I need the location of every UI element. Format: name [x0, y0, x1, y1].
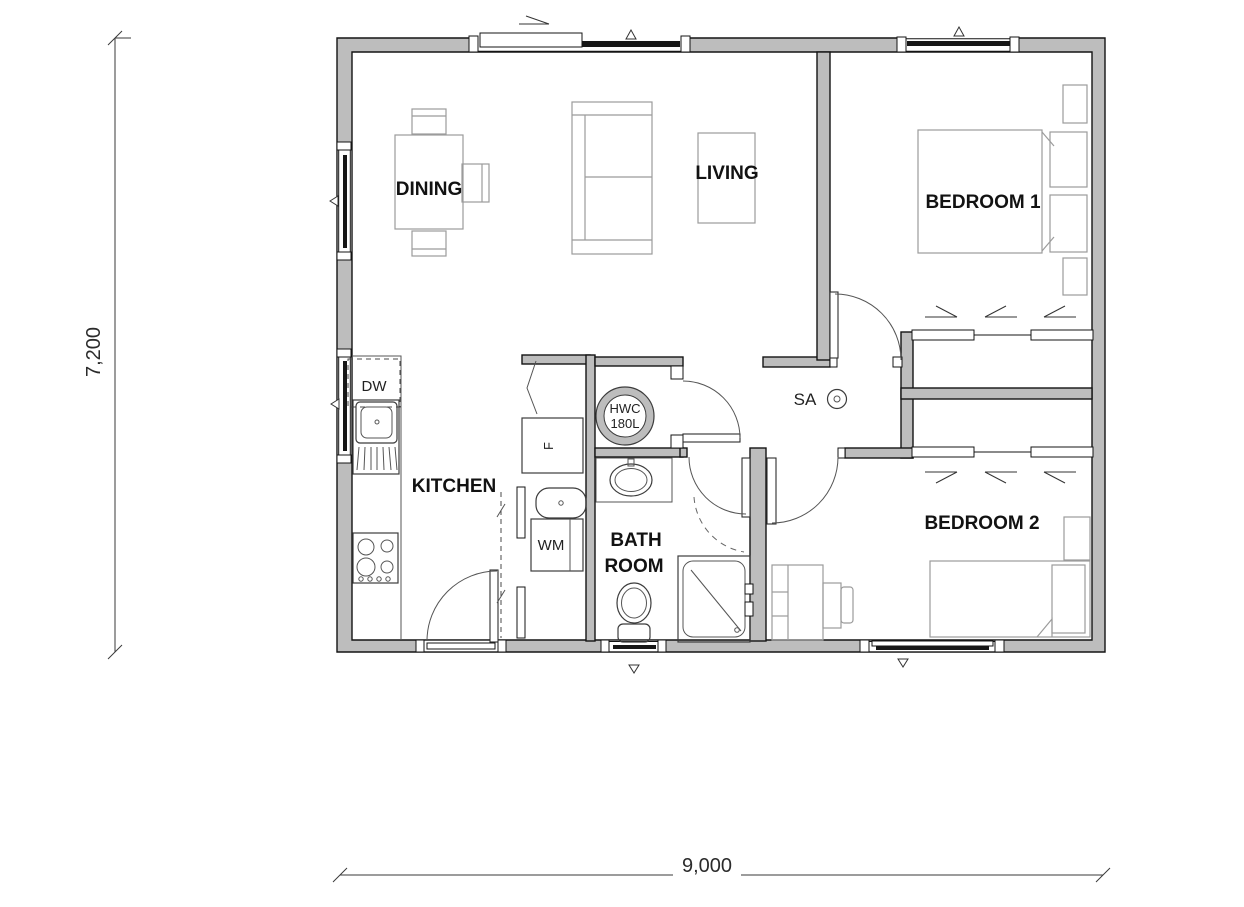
- interior-walls: [517, 52, 1092, 641]
- entry-door-sill: [427, 643, 495, 649]
- sliding-door-fixed-panel: [480, 33, 582, 47]
- room-labels: DINING LIVING BEDROOM 1 BEDROOM 2 KITCHE…: [396, 163, 1041, 577]
- exterior-openings: [330, 16, 1019, 673]
- bathroom-door: [689, 457, 750, 552]
- shower-door-swing: [694, 497, 744, 552]
- shower: [678, 556, 753, 642]
- dishwasher-label: DW: [362, 378, 388, 395]
- slide-direction-icons: [925, 306, 1076, 317]
- chair: [412, 109, 446, 134]
- smoke-alarm-label: SA: [794, 390, 817, 409]
- living-label: LIVING: [695, 163, 758, 184]
- desk-chair: [841, 587, 853, 623]
- sliding-wardrobe-door: [1031, 330, 1093, 340]
- wall-fridge-nook: [522, 355, 590, 364]
- slide-direction-icons: [925, 472, 1076, 483]
- sliding-door-moving-panel: [582, 41, 680, 47]
- sliding-wardrobe-door: [1031, 447, 1093, 457]
- window-bathroom: [601, 640, 666, 673]
- window-bedroom2: [860, 640, 1004, 667]
- wall-bath-door-post: [680, 448, 687, 457]
- opening-marker-icon: [330, 196, 338, 206]
- opening-marker-icon: [954, 27, 964, 36]
- wall-bedroom-divider: [901, 388, 1092, 399]
- entry-door-leaf: [490, 570, 498, 642]
- interior-doors: [683, 292, 901, 552]
- chair: [412, 231, 446, 256]
- window-bedroom1: [897, 27, 1019, 52]
- desk: [772, 565, 853, 640]
- sliding-wardrobe-door: [912, 447, 974, 457]
- bedroom2-label: BEDROOM 2: [924, 513, 1039, 534]
- window-dining: [330, 142, 351, 260]
- vanity: [596, 458, 672, 502]
- sink-drainer: [357, 447, 397, 470]
- single-bed: [930, 561, 1090, 637]
- wall-hwc-bottom: [595, 448, 683, 457]
- bedroom2-door: [767, 457, 838, 524]
- bedroom1-furniture: [918, 85, 1087, 295]
- bedroom1-label: BEDROOM 1: [925, 192, 1041, 213]
- opening-marker-icon: [898, 659, 908, 667]
- dimension-bottom: 9,000: [333, 855, 1110, 882]
- fridge-label: F: [541, 442, 556, 450]
- overall-depth-dimension: 7,200: [83, 327, 105, 377]
- hwc-label-line2: 180L: [611, 416, 640, 431]
- overall-width-dimension: 9,000: [682, 855, 732, 877]
- laundry-jamb: [517, 487, 525, 538]
- opening-marker-icon: [626, 30, 636, 39]
- toilet: [617, 583, 651, 642]
- hwc-cupboard-door: [683, 381, 740, 442]
- wall-kitchen-bathroom: [586, 355, 595, 641]
- pillow: [1050, 132, 1087, 187]
- wardrobe-bedroom1: [912, 306, 1093, 340]
- slide-direction-icon: [519, 16, 549, 24]
- pillow: [1050, 195, 1087, 252]
- sliding-wardrobe-door: [912, 330, 974, 340]
- floor-plan-drawing: DINING LIVING BEDROOM 1 BEDROOM 2 KITCHE…: [0, 0, 1244, 907]
- opening-marker-icon: [331, 399, 339, 409]
- bedside-table: [1064, 517, 1090, 560]
- wardrobe-bedroom2: [912, 447, 1093, 483]
- floor-plan-page: DINING LIVING BEDROOM 1 BEDROOM 2 KITCHE…: [0, 0, 1244, 907]
- laundry-jamb: [517, 587, 525, 638]
- bedroom2-furniture: [772, 517, 1090, 640]
- washing-machine-label: WM: [538, 537, 565, 554]
- entry-door-swing: [427, 571, 497, 641]
- wall-hall-bottom: [845, 448, 913, 458]
- cooktop: [353, 533, 398, 583]
- opening-marker-icon: [629, 665, 639, 673]
- bedside-table: [1063, 258, 1087, 295]
- kitchen-label: KITCHEN: [412, 476, 496, 497]
- kitchen-sink: [353, 400, 399, 474]
- duvet-fold: [1037, 619, 1052, 637]
- bedside-table: [1063, 85, 1087, 123]
- pillow: [1052, 565, 1085, 633]
- sliding-door-living: [469, 16, 690, 52]
- laundry-tub: [536, 488, 586, 518]
- smoke-alarm-symbol: [828, 390, 847, 409]
- sofa: [572, 102, 652, 254]
- shower-mixer: [745, 602, 753, 616]
- dimension-left: 7,200: [83, 31, 131, 659]
- dining-label: DINING: [396, 179, 463, 200]
- bathroom-label-line1: BATH: [610, 530, 661, 551]
- wall-living-bedroom1: [817, 52, 830, 360]
- hwc-label-line1: HWC: [609, 401, 640, 416]
- wall-hwc-top: [595, 357, 683, 366]
- bedroom1-door: [830, 292, 901, 360]
- bathroom-label-line2: ROOM: [604, 556, 663, 577]
- chair: [462, 164, 489, 202]
- kitchen-fixtures: [348, 356, 505, 640]
- pantry-doors: [527, 361, 537, 414]
- shower-mixer: [745, 584, 753, 594]
- kitchen-bench: [352, 356, 401, 640]
